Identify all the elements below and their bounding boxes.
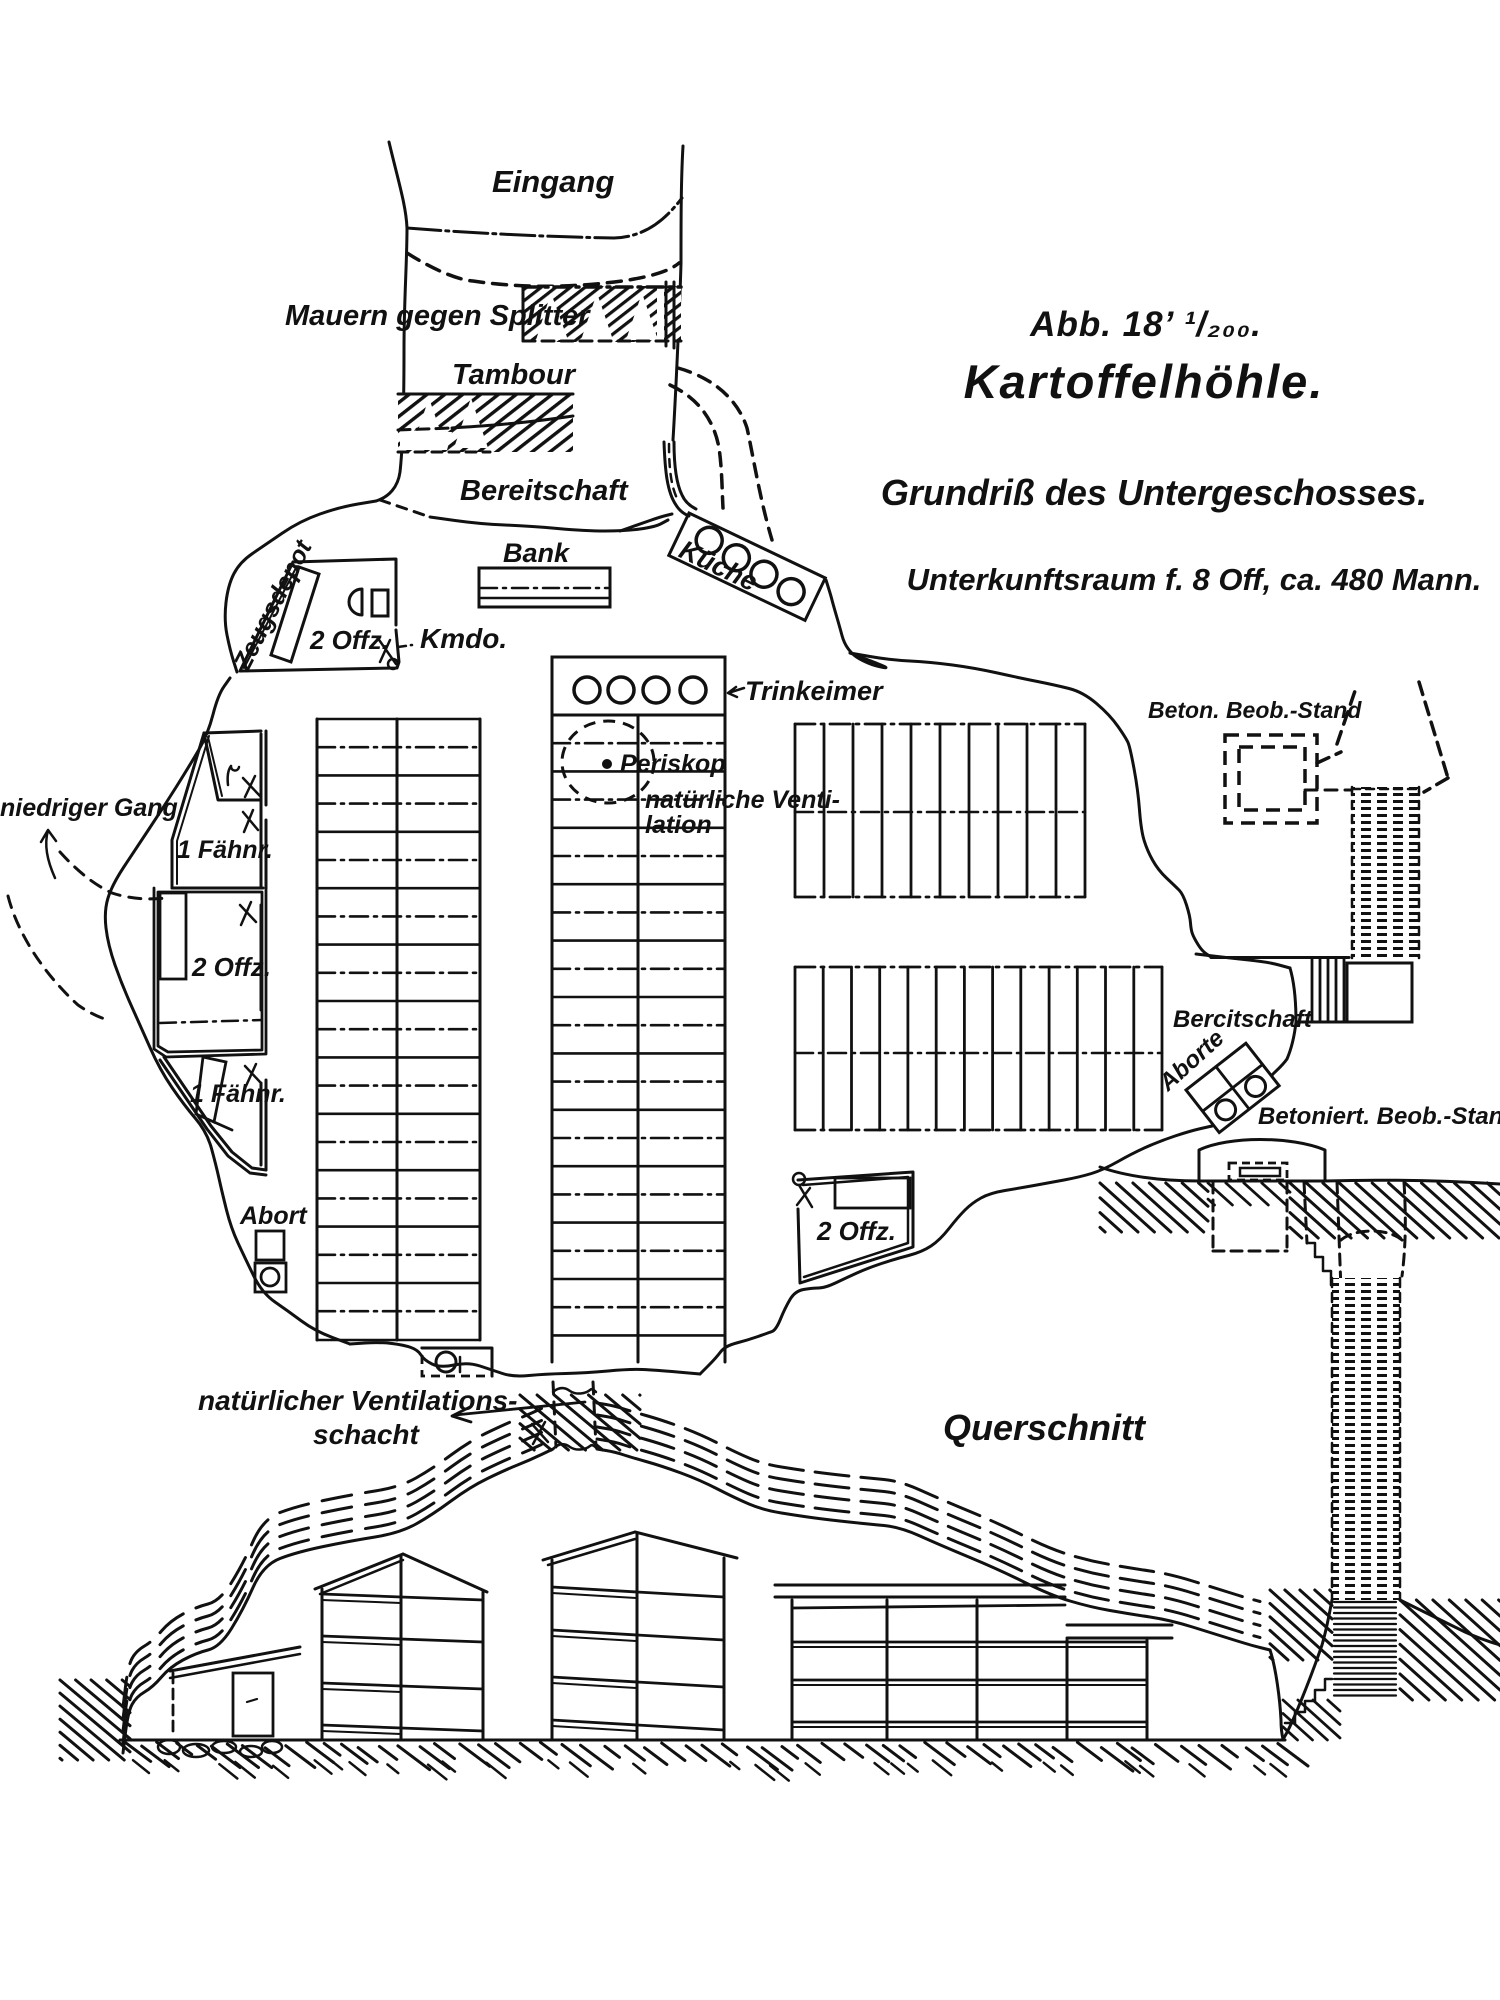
svg-text:1 Fähnr.: 1 Fähnr. [190,1080,286,1108]
svg-text:2 Offz.: 2 Offz. [191,952,271,982]
svg-text:Querschnitt: Querschnitt [943,1407,1147,1448]
svg-text:1 Fähnr.: 1 Fähnr. [177,836,273,864]
svg-text:Betoniert. Beob.-Stand: Betoniert. Beob.-Stand [1258,1103,1500,1130]
svg-text:Kmdo.: Kmdo. [420,623,507,654]
svg-text:Abb. 18’ ¹/₂₀₀.: Abb. 18’ ¹/₂₀₀. [1029,305,1262,344]
svg-text:Tambour: Tambour [452,359,577,391]
svg-text:2 Offz.: 2 Offz. [816,1216,896,1246]
svg-text:Eingang: Eingang [492,164,614,199]
svg-text:Bereitschaft: Bereitschaft [460,475,629,507]
svg-text:natürlicher Ventilations-: natürlicher Ventilations- [198,1385,517,1416]
svg-text:Periskop: Periskop [620,750,726,778]
svg-text:lation: lation [645,811,712,839]
svg-text:Bank: Bank [503,538,571,568]
svg-text:Beton. Beob.-Stand: Beton. Beob.-Stand [1148,697,1362,723]
svg-text:Bercitschaft: Bercitschaft [1173,1006,1313,1033]
svg-text:schacht: schacht [313,1419,420,1450]
svg-text:Grundriß des Untergeschosses.: Grundriß des Untergeschosses. [881,472,1427,513]
svg-text:Mauern gegen Splitter: Mauern gegen Splitter [285,300,591,332]
svg-text:Kartoffelhöhle.: Kartoffelhöhle. [964,355,1325,408]
svg-text:2 Offz.: 2 Offz. [309,625,389,655]
svg-text:Abort: Abort [239,1202,308,1230]
svg-text:Trinkeimer: Trinkeimer [745,676,884,706]
svg-text:niedriger Gang: niedriger Gang [0,794,178,822]
svg-text:Unterkunftsraum f. 8 Off, ca.: Unterkunftsraum f. 8 Off, ca. 480 Mann. [907,562,1482,597]
